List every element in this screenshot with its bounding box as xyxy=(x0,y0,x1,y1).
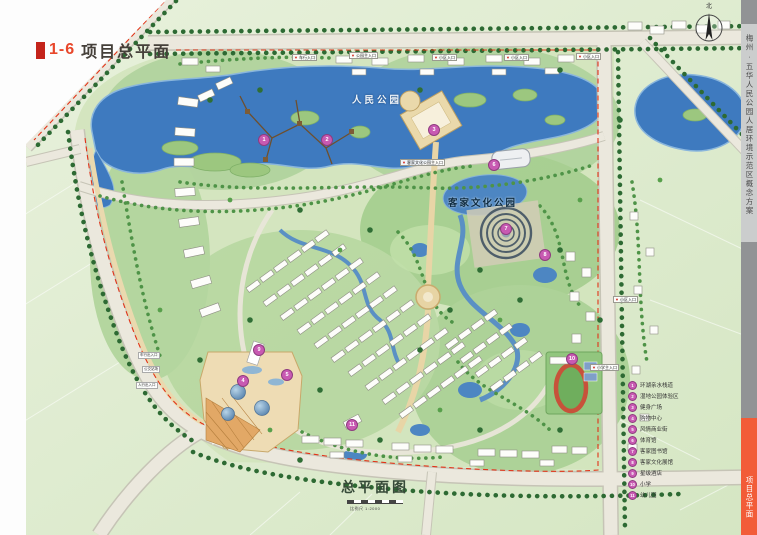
map-marker: 10 xyxy=(566,353,578,365)
map-marker: 6 xyxy=(488,159,500,171)
central-plaza xyxy=(416,285,440,309)
map-marker: 11 xyxy=(346,419,358,431)
legend-item: 1环湖亲水栈道 xyxy=(628,381,679,389)
page-title: 1-6 项目总平面 xyxy=(36,38,171,62)
map-marker: 3 xyxy=(428,124,440,136)
legend-item: 5风情商业街 xyxy=(628,425,679,433)
legend-item: 7客家图书馆 xyxy=(628,447,679,455)
map-marker: 4 xyxy=(237,375,249,387)
north-label: 北 xyxy=(692,4,726,11)
entrance-arrow-icon: ▼ xyxy=(402,160,406,165)
legend-item: 8客家文化展馆 xyxy=(628,458,679,466)
title-red-bar-icon xyxy=(36,42,45,59)
entrance-arrow-icon: ▼ xyxy=(294,55,298,60)
legend-item: 4购物中心 xyxy=(628,414,679,422)
entrance-label: ▼客家文化公园主入口 xyxy=(400,159,445,166)
peoples-park-label: 人民公园 xyxy=(352,92,402,106)
entrance-label: ▼小学主入口 xyxy=(590,364,619,371)
roadside-label: 公交站场 xyxy=(142,366,160,373)
entrance-label: ▼公园主入口 xyxy=(349,52,378,59)
scale-bar xyxy=(347,500,403,504)
map-marker: 9 xyxy=(253,344,265,356)
map-marker: 1 xyxy=(258,134,270,146)
project-name-vertical: 梅州·五华人民公园人居环境示范区概念方案 xyxy=(741,24,757,242)
map-marker: 7 xyxy=(500,223,512,235)
map-marker: 8 xyxy=(539,249,551,261)
entrance-label: ▼小区入口 xyxy=(504,54,529,61)
entrance-arrow-icon: ▼ xyxy=(592,365,596,370)
entrance-label: ▼车行入口 xyxy=(292,54,317,61)
legend-item: 9星级酒店 xyxy=(628,469,679,477)
legend-item: 6体育馆 xyxy=(628,436,679,444)
sidebar-spacer xyxy=(741,242,757,418)
north-arrow: 北 xyxy=(692,4,726,11)
entrance-arrow-icon: ▼ xyxy=(434,55,438,60)
sidebar-spacer xyxy=(741,0,757,24)
commercial-fan-area xyxy=(200,352,302,452)
roadside-label: 车行出入口 xyxy=(138,352,160,359)
entrance-arrow-icon: ▼ xyxy=(351,53,355,58)
hakka-culture-park-label: 客家文化公园 xyxy=(448,195,517,209)
plan-sheet: 1-6 项目总平面 北 人民公园 客家文化公园 ▼车行入口 ▼公园主入口 ▼小区… xyxy=(0,0,757,535)
entrance-label: ▼小区入口 xyxy=(613,296,638,303)
sidebar-tab-current: 项目总平面 xyxy=(741,418,757,535)
plan-title: 总平面图 xyxy=(341,477,409,497)
entrance-arrow-icon: ▼ xyxy=(506,55,510,60)
title-index: 1-6 xyxy=(49,41,75,59)
legend-item: 11幼儿园 xyxy=(628,491,679,499)
scale-text: 比例尺 1:2000 xyxy=(350,506,380,512)
roadside-label: 人行出入口 xyxy=(136,382,158,389)
entrance-label: ▼小区入口 xyxy=(432,54,457,61)
legend-item: 3健身广场 xyxy=(628,403,679,411)
map-marker: 5 xyxy=(281,369,293,381)
legend-item: 2湿地公园体验区 xyxy=(628,392,679,400)
entrance-arrow-icon: ▼ xyxy=(578,54,582,59)
legend: 1环湖亲水栈道 2湿地公园体验区 3健身广场 4购物中心 5风情商业街 6体育馆… xyxy=(628,381,679,502)
map-marker: 2 xyxy=(321,134,333,146)
entrance-arrow-icon: ▼ xyxy=(615,297,619,302)
title-text: 项目总平面 xyxy=(81,38,171,62)
right-sidebar: 梅州·五华人民公园人居环境示范区概念方案 项目总平面 xyxy=(741,0,757,535)
entrance-label: ▼小区入口 xyxy=(576,53,601,60)
legend-item: 10小学 xyxy=(628,480,679,488)
